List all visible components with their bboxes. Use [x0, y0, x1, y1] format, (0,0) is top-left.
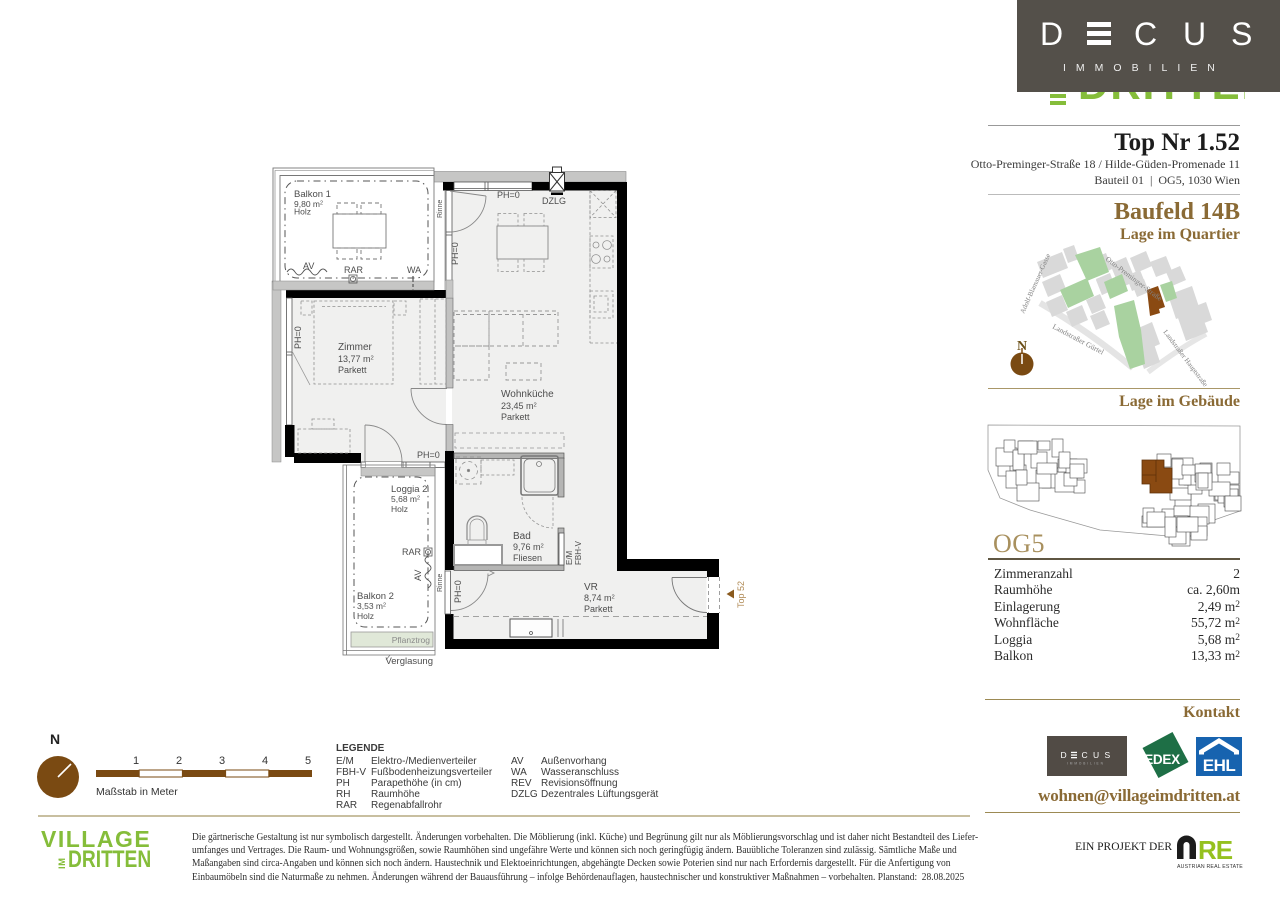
- svg-text:RE: RE: [1198, 835, 1233, 865]
- svg-text:N: N: [1017, 339, 1027, 354]
- svg-text:1: 1: [133, 755, 139, 767]
- svg-text:VR: VR: [584, 582, 598, 593]
- svg-text:5: 5: [305, 755, 311, 767]
- svg-text:PH=0: PH=0: [453, 580, 463, 603]
- svg-text:2: 2: [176, 755, 182, 767]
- svg-text:IMMOBILIEN: IMMOBILIEN: [1067, 762, 1105, 766]
- svg-text:13,77 m2: 13,77 m2: [338, 354, 374, 364]
- svg-text:S: S: [1231, 16, 1252, 52]
- svg-text:5,68 m2: 5,68 m2: [391, 494, 420, 504]
- svg-text:FBH-V: FBH-V: [574, 540, 583, 565]
- svg-text:9,76 m2: 9,76 m2: [513, 542, 544, 552]
- svg-text:Top 52: Top 52: [736, 581, 746, 608]
- svg-text:DZLG: DZLG: [542, 196, 566, 206]
- svg-text:U: U: [1183, 16, 1206, 52]
- svg-text:D: D: [1040, 16, 1063, 52]
- svg-text:AUSTRIAN REAL ESTATE: AUSTRIAN REAL ESTATE: [1177, 864, 1243, 870]
- svg-text:Rinne: Rinne: [437, 200, 444, 218]
- svg-text:PH=0: PH=0: [417, 450, 440, 460]
- svg-text:8,74 m2: 8,74 m2: [584, 593, 615, 603]
- svg-text:Pflanztrog: Pflanztrog: [392, 635, 431, 645]
- svg-text:PH=0: PH=0: [450, 242, 460, 265]
- svg-text:3,53 m2: 3,53 m2: [357, 601, 386, 611]
- svg-text:Rinne: Rinne: [437, 574, 444, 592]
- svg-text:23,45 m2: 23,45 m2: [501, 401, 537, 411]
- svg-text:U: U: [1093, 750, 1099, 760]
- svg-text:PH=0: PH=0: [497, 190, 520, 200]
- svg-text:Wohnküche: Wohnküche: [501, 389, 554, 400]
- svg-text:AV: AV: [413, 570, 423, 581]
- svg-text:C: C: [1082, 750, 1088, 760]
- svg-text:Parkett: Parkett: [584, 604, 613, 614]
- svg-text:EDEX: EDEX: [1144, 752, 1180, 767]
- svg-text:Zimmer: Zimmer: [338, 342, 373, 353]
- svg-text:Holz: Holz: [391, 504, 408, 514]
- svg-text:PH=0: PH=0: [293, 326, 303, 349]
- svg-text:Holz: Holz: [294, 207, 311, 217]
- svg-text:S: S: [1105, 750, 1111, 760]
- svg-text:IMMOBILIEN: IMMOBILIEN: [1063, 62, 1225, 74]
- svg-text:Fliesen: Fliesen: [513, 553, 542, 563]
- svg-text:WA: WA: [407, 265, 421, 275]
- svg-text:4: 4: [262, 755, 268, 767]
- svg-text:Parkett: Parkett: [338, 365, 367, 375]
- svg-text:EHL: EHL: [1203, 756, 1236, 775]
- svg-text:Verglasung: Verglasung: [385, 656, 433, 667]
- svg-text:Holz: Holz: [357, 611, 374, 621]
- svg-text:RAR: RAR: [344, 265, 364, 275]
- svg-text:Bad: Bad: [513, 531, 531, 542]
- svg-text:C: C: [1134, 16, 1157, 52]
- svg-text:D: D: [1061, 750, 1067, 760]
- svg-text:3: 3: [219, 755, 225, 767]
- svg-text:Parkett: Parkett: [501, 412, 530, 422]
- svg-text:RAR: RAR: [402, 547, 422, 557]
- svg-text:E/M: E/M: [565, 550, 574, 565]
